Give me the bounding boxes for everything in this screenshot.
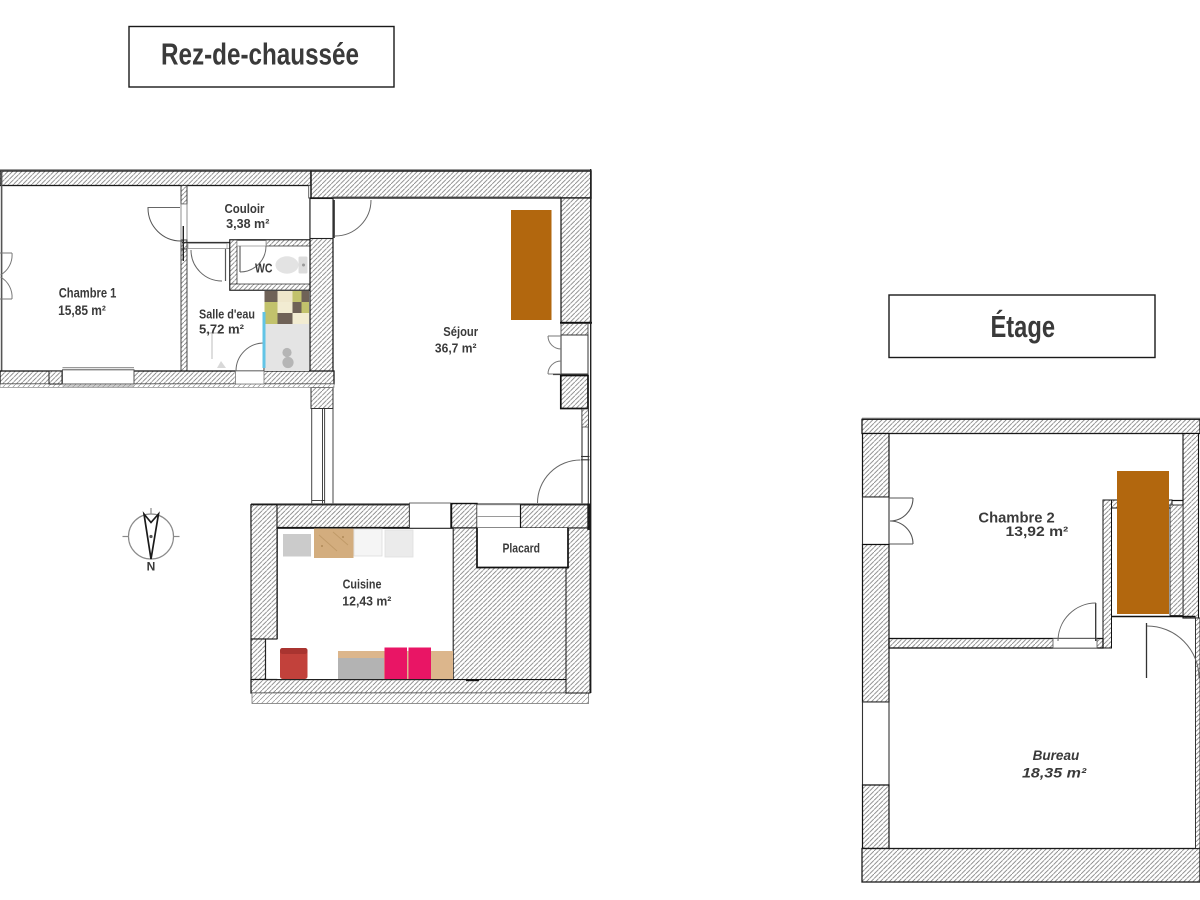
svg-text:5,72 m²: 5,72 m² <box>199 322 245 337</box>
svg-text:Séjour: Séjour <box>443 324 478 339</box>
svg-text:18,35 m²: 18,35 m² <box>1022 765 1087 781</box>
svg-text:Étage: Étage <box>991 309 1056 344</box>
svg-text:12,43 m²: 12,43 m² <box>342 595 391 609</box>
svg-text:Salle d'eau: Salle d'eau <box>199 307 255 322</box>
svg-text:36,7 m²: 36,7 m² <box>435 341 477 356</box>
svg-text:Rez-de-chaussée: Rez-de-chaussée <box>161 37 359 72</box>
svg-text:Placard: Placard <box>503 542 541 556</box>
svg-text:Cuisine: Cuisine <box>343 578 382 592</box>
svg-text:Couloir: Couloir <box>225 202 265 216</box>
svg-text:WC: WC <box>255 262 273 276</box>
svg-text:Chambre 1: Chambre 1 <box>59 284 117 300</box>
svg-text:Bureau: Bureau <box>1033 747 1080 763</box>
svg-text:N: N <box>147 560 156 574</box>
svg-text:15,85 m²: 15,85 m² <box>58 302 106 318</box>
svg-text:13,92 m²: 13,92 m² <box>1006 523 1069 539</box>
svg-text:3,38 m²: 3,38 m² <box>226 217 269 231</box>
